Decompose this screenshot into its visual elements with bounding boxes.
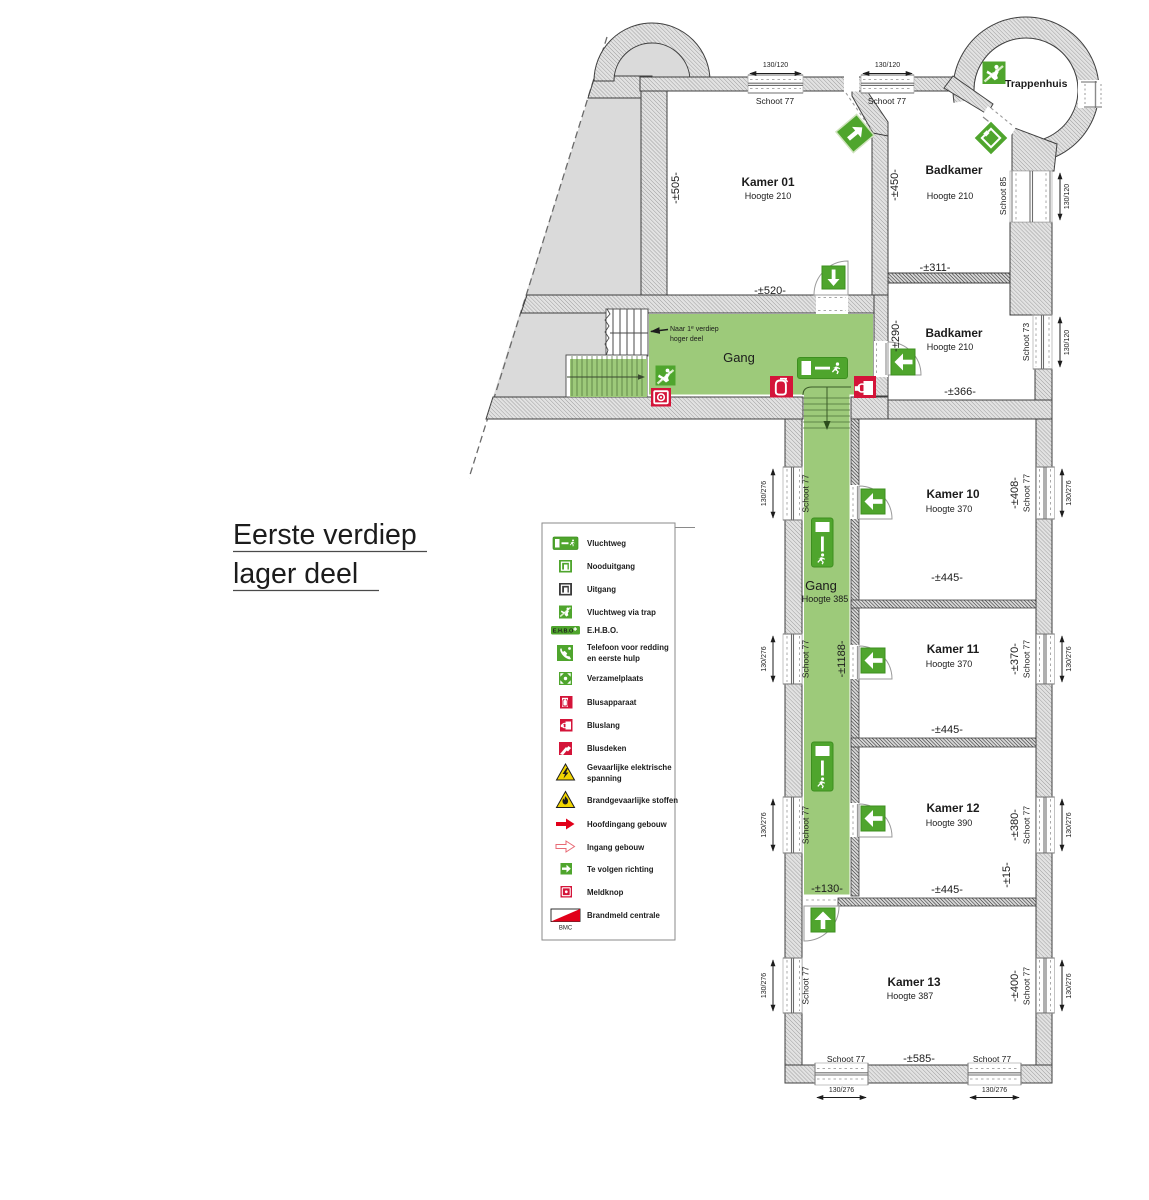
svg-text:E.H.B.O: E.H.B.O: [553, 629, 574, 635]
svg-text:-±445-: -±445-: [931, 572, 963, 584]
svg-text:Badkamer: Badkamer: [925, 163, 982, 177]
svg-text:Schoot 77: Schoot 77: [827, 1054, 866, 1064]
svg-text:130/276: 130/276: [761, 646, 768, 671]
svg-text:Gevaarlijke elektrische: Gevaarlijke elektrische: [587, 763, 672, 772]
svg-text:Kamer 01: Kamer 01: [741, 175, 795, 189]
svg-text:-±311-: -±311-: [920, 262, 951, 274]
svg-text:-±130-: -±130-: [811, 883, 843, 895]
svg-text:Vluchtweg via trap: Vluchtweg via trap: [587, 608, 656, 617]
svg-text:-±408-: -±408-: [1009, 477, 1021, 509]
svg-text:-±370-: -±370-: [1009, 643, 1021, 675]
svg-text:BMC: BMC: [559, 926, 573, 932]
svg-text:Hoogte 390: Hoogte 390: [926, 818, 973, 828]
svg-text:130/276: 130/276: [1066, 646, 1073, 671]
svg-text:Schoot 77: Schoot 77: [801, 640, 811, 679]
svg-text:Schoot 77: Schoot 77: [756, 96, 795, 106]
svg-text:Uitgang: Uitgang: [587, 585, 616, 594]
svg-text:130/276: 130/276: [1066, 480, 1073, 505]
svg-text:en eerste hulp: en eerste hulp: [587, 654, 640, 663]
svg-text:Schoot 77: Schoot 77: [1022, 806, 1032, 845]
svg-text:Schoot 77: Schoot 77: [801, 966, 811, 1005]
svg-text:Hoogte 370: Hoogte 370: [926, 659, 973, 669]
svg-text:130/120: 130/120: [1064, 184, 1071, 209]
svg-text:Hoofdingang gebouw: Hoofdingang gebouw: [587, 820, 668, 829]
svg-text:Eerste verdiep: Eerste verdiep: [233, 519, 417, 551]
svg-text:-±445-: -±445-: [931, 724, 963, 736]
svg-text:130/276: 130/276: [761, 973, 768, 998]
svg-text:-±520-: -±520-: [754, 285, 786, 297]
svg-text:Gang: Gang: [805, 578, 837, 593]
svg-text:Schoot 77: Schoot 77: [1022, 967, 1032, 1006]
svg-text:130/276: 130/276: [829, 1087, 854, 1094]
svg-text:hoger deel: hoger deel: [670, 336, 704, 343]
svg-text:130/276: 130/276: [1066, 973, 1073, 998]
svg-text:130/276: 130/276: [761, 481, 768, 506]
svg-text:Brandmeld centrale: Brandmeld centrale: [587, 911, 660, 920]
svg-text:Schoot 77: Schoot 77: [973, 1054, 1012, 1064]
svg-text:-±445-: -±445-: [931, 884, 963, 896]
svg-text:Kamer 11: Kamer 11: [927, 642, 980, 656]
svg-text:Kamer 13: Kamer 13: [887, 975, 941, 989]
svg-text:Vluchtweg: Vluchtweg: [587, 539, 626, 548]
svg-text:Blusapparaat: Blusapparaat: [587, 698, 637, 707]
svg-text:-±15-: -±15-: [1001, 862, 1013, 888]
svg-text:Badkamer: Badkamer: [925, 326, 982, 340]
svg-text:Hoogte 385: Hoogte 385: [802, 594, 849, 604]
svg-text:Bluslang: Bluslang: [587, 721, 620, 730]
svg-text:Te volgen richting: Te volgen richting: [587, 865, 654, 874]
svg-text:-±366-: -±366-: [944, 386, 976, 398]
svg-text:Hoogte 387: Hoogte 387: [887, 991, 934, 1001]
svg-text:Brandgevaarlijke stoffen: Brandgevaarlijke stoffen: [587, 796, 678, 805]
svg-text:spanning: spanning: [587, 774, 622, 783]
svg-text:Schoot 77: Schoot 77: [1022, 640, 1032, 679]
svg-text:Schoot 77: Schoot 77: [868, 96, 907, 106]
svg-text:Kamer 10: Kamer 10: [926, 487, 980, 501]
svg-text:-±380-: -±380-: [1009, 809, 1021, 841]
svg-text:Trappenhuis: Trappenhuis: [1005, 78, 1068, 90]
svg-text:130/120: 130/120: [875, 62, 900, 69]
svg-text:Nooduitgang: Nooduitgang: [587, 562, 635, 571]
svg-text:Schoot 73: Schoot 73: [1021, 323, 1031, 362]
svg-text:130/276: 130/276: [982, 1087, 1007, 1094]
svg-text:Schoot 85: Schoot 85: [998, 177, 1008, 216]
svg-text:Verzamelplaats: Verzamelplaats: [587, 674, 644, 683]
svg-text:Ingang gebouw: Ingang gebouw: [587, 843, 645, 852]
svg-text:Hoogte 210: Hoogte 210: [745, 191, 792, 201]
svg-text:130/120: 130/120: [763, 62, 788, 69]
svg-text:Hoogte 370: Hoogte 370: [926, 504, 973, 514]
svg-text:E.H.B.O.: E.H.B.O.: [587, 626, 618, 635]
svg-text:-±585-: -±585-: [903, 1053, 935, 1065]
svg-text:-±450-: -±450-: [889, 169, 901, 201]
svg-text:Telefoon voor redding: Telefoon voor redding: [587, 643, 669, 652]
svg-text:Blusdeken: Blusdeken: [587, 744, 627, 753]
svg-text:-±1188-: -±1188-: [836, 640, 848, 677]
svg-text:130/120: 130/120: [1064, 330, 1071, 355]
svg-text:Meldknop: Meldknop: [587, 888, 624, 897]
svg-text:Schoot 77: Schoot 77: [801, 806, 811, 845]
svg-text:-±400-: -±400-: [1009, 970, 1021, 1002]
svg-text:Gang: Gang: [723, 350, 755, 365]
svg-text:lager deel: lager deel: [233, 558, 358, 590]
svg-text:130/276: 130/276: [1066, 812, 1073, 837]
svg-text:Naar 1e verdiep: Naar 1e verdiep: [670, 325, 719, 333]
svg-text:130/276: 130/276: [761, 812, 768, 837]
svg-text:Schoot 77: Schoot 77: [1022, 474, 1032, 513]
svg-text:-±290-: -±290-: [890, 320, 902, 352]
svg-text:Schoot 77: Schoot 77: [801, 474, 811, 513]
svg-text:Kamer 12: Kamer 12: [926, 801, 980, 815]
svg-text:Hoogte 210: Hoogte 210: [927, 191, 974, 201]
svg-text:-±505-: -±505-: [670, 172, 682, 204]
svg-text:Hoogte 210: Hoogte 210: [927, 342, 974, 352]
